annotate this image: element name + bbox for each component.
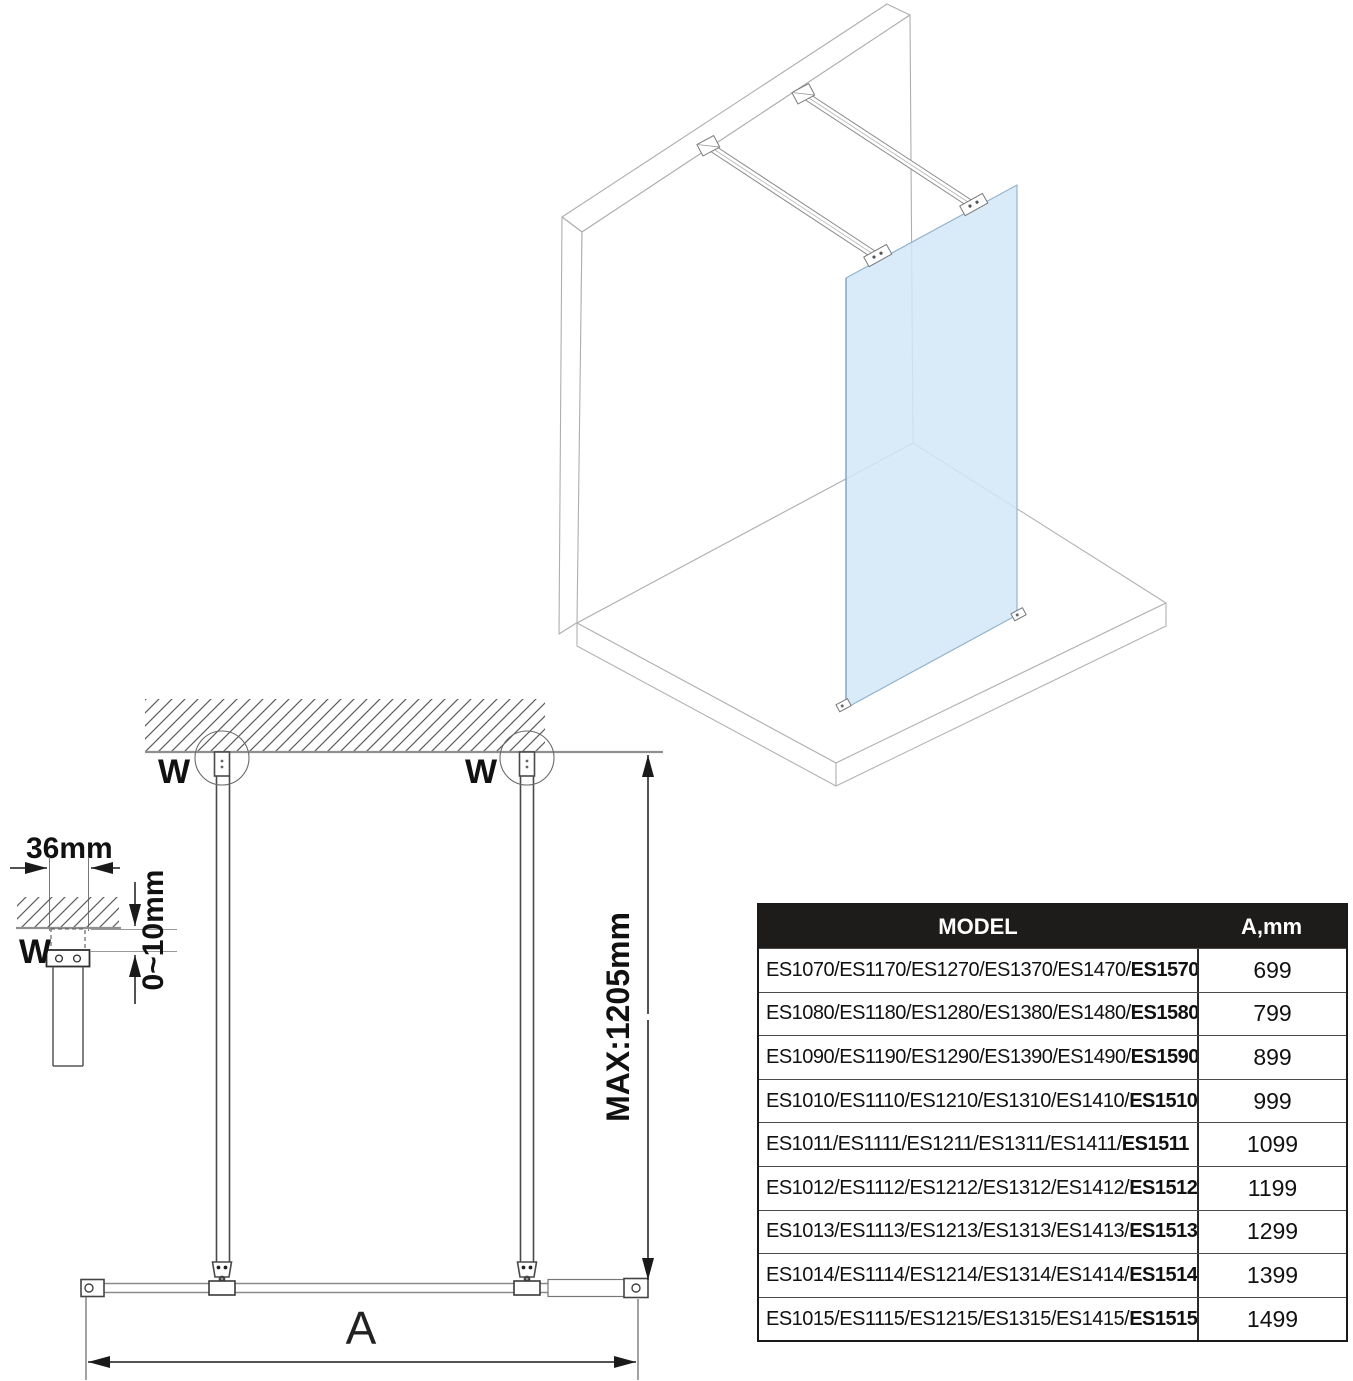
model-list: ES1080/ES1180/ES1280/ES1380/ES1480/ xyxy=(766,1002,1131,1025)
detail-w-label: W xyxy=(19,933,52,971)
model-list: ES1010/ES1110/ES1210/ES1310/ES1410/ xyxy=(766,1090,1129,1113)
table-row: ES1070/ES1170/ES1270/ES1370/ES1470/ES157… xyxy=(759,948,1346,992)
bar-overlap-profile xyxy=(548,1280,628,1297)
isometric-view xyxy=(559,4,1166,786)
model-cell: ES1080/ES1180/ES1280/ES1380/ES1480/ES158… xyxy=(759,993,1197,1036)
model-list: ES1013/ES1113/ES1213/ES1313/ES1413/ xyxy=(766,1220,1129,1243)
table-row: ES1013/ES1113/ES1213/ES1313/ES1413/ES151… xyxy=(759,1210,1346,1254)
a-mm-cell: 1299 xyxy=(1197,1211,1346,1254)
a-mm-cell: 1199 xyxy=(1197,1167,1346,1210)
glass-edge-bar xyxy=(81,1279,648,1298)
a-mm-cell: 899 xyxy=(1197,1036,1346,1079)
model-highlight: ES1514 xyxy=(1129,1264,1197,1287)
bar-hinge-right xyxy=(518,1262,537,1277)
model-cell: ES1010/ES1110/ES1210/ES1310/ES1410/ES151… xyxy=(759,1080,1197,1123)
wall-mount-left xyxy=(215,752,230,776)
model-highlight: ES1590 xyxy=(1131,1046,1197,1069)
detail-width-label: 36mm xyxy=(26,832,113,865)
detail-view: 36mm W 0~10mm xyxy=(10,832,177,1066)
table-row: ES1014/ES1114/ES1214/ES1314/ES1414/ES151… xyxy=(759,1253,1346,1297)
a-mm-cell: 1499 xyxy=(1197,1298,1346,1341)
table-row: ES1010/ES1110/ES1210/ES1310/ES1410/ES151… xyxy=(759,1079,1346,1123)
model-cell: ES1014/ES1114/ES1214/ES1314/ES1414/ES151… xyxy=(759,1254,1197,1297)
model-highlight: ES1511 xyxy=(1122,1133,1189,1156)
wall-anchor-label-left: W xyxy=(158,753,191,791)
support-bar-right xyxy=(518,752,537,1282)
header-model: MODEL xyxy=(759,905,1197,948)
a-mm-cell: 1399 xyxy=(1197,1254,1346,1297)
model-list: ES1011/ES1111/ES1211/ES1311/ES1411/ xyxy=(766,1133,1122,1156)
detail-bar xyxy=(53,967,83,1067)
model-list: ES1014/ES1114/ES1214/ES1314/ES1414/ xyxy=(766,1264,1129,1287)
detail-wall-hatch xyxy=(17,897,119,928)
a-mm-cell: 999 xyxy=(1197,1080,1346,1123)
a-mm-cell: 1099 xyxy=(1197,1123,1346,1166)
bar-hinge-left xyxy=(213,1262,232,1277)
wall-anchor-label-right: W xyxy=(465,753,498,791)
wall-hatch xyxy=(145,699,545,752)
table-row: ES1011/ES1111/ES1211/ES1311/ES1411/ES151… xyxy=(759,1122,1346,1166)
table-row: ES1012/ES1112/ES1212/ES1312/ES1412/ES151… xyxy=(759,1166,1346,1210)
bar-clamp-right xyxy=(514,1281,540,1295)
model-list: ES1090/ES1190/ES1290/ES1390/ES1490/ xyxy=(766,1046,1131,1069)
table-header: MODEL A,mm xyxy=(759,905,1346,948)
plan-view: W W xyxy=(81,699,663,1380)
model-list: ES1070/ES1170/ES1270/ES1370/ES1470/ xyxy=(766,959,1131,982)
max-dimension-label: MAX:1205mm xyxy=(600,912,636,1122)
model-highlight: ES1570 xyxy=(1131,959,1197,982)
model-highlight: ES1580 xyxy=(1131,1002,1197,1025)
a-dimension-label: A xyxy=(346,1302,377,1354)
a-mm-cell: 699 xyxy=(1197,949,1346,992)
model-list: ES1015/ES1115/ES1215/ES1315/ES1415/ xyxy=(766,1308,1129,1331)
support-bar-left xyxy=(213,752,232,1282)
table-row: ES1080/ES1180/ES1280/ES1380/ES1480/ES158… xyxy=(759,992,1346,1036)
detail-bracket xyxy=(47,929,90,1066)
model-highlight: ES1510 xyxy=(1129,1090,1197,1113)
model-list: ES1012/ES1112/ES1212/ES1312/ES1412/ xyxy=(766,1177,1129,1200)
detail-gap-label: 0~10mm xyxy=(137,870,170,991)
model-cell: ES1012/ES1112/ES1212/ES1312/ES1412/ES151… xyxy=(759,1167,1197,1210)
model-highlight: ES1515 xyxy=(1129,1308,1197,1331)
model-cell: ES1011/ES1111/ES1211/ES1311/ES1411/ES151… xyxy=(759,1123,1197,1166)
bar-clamp-left xyxy=(209,1281,235,1295)
model-cell: ES1015/ES1115/ES1215/ES1315/ES1415/ES151… xyxy=(759,1298,1197,1341)
model-size-table: MODEL A,mm ES1070/ES1170/ES1270/ES1370/E… xyxy=(757,903,1348,1342)
bracket-plate xyxy=(47,950,90,967)
table-row: ES1090/ES1190/ES1290/ES1390/ES1490/ES159… xyxy=(759,1035,1346,1079)
header-a-mm: A,mm xyxy=(1197,905,1346,948)
model-cell: ES1013/ES1113/ES1213/ES1313/ES1413/ES151… xyxy=(759,1211,1197,1254)
model-cell: ES1090/ES1190/ES1290/ES1390/ES1490/ES159… xyxy=(759,1036,1197,1079)
a-mm-cell: 799 xyxy=(1197,993,1346,1036)
model-cell: ES1070/ES1170/ES1270/ES1370/ES1470/ES157… xyxy=(759,949,1197,992)
model-highlight: ES1513 xyxy=(1129,1220,1197,1243)
table-row: ES1015/ES1115/ES1215/ES1315/ES1415/ES151… xyxy=(759,1297,1346,1341)
wall-mount-right xyxy=(520,752,535,776)
model-highlight: ES1512 xyxy=(1129,1177,1197,1200)
